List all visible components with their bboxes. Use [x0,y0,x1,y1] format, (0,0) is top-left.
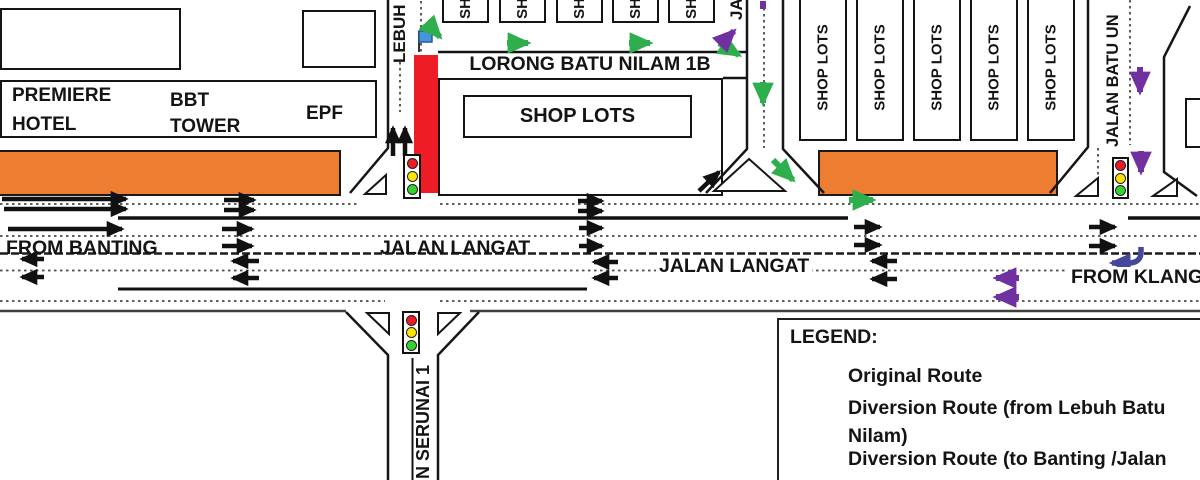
jalan-batu-unjur-label: JALAN BATU UN [1105,14,1122,147]
from-klang-label: FROM KLANG [1068,267,1200,287]
jalan-langat-label-east: JALAN LANGAT [656,256,812,276]
ja-road-label: JA [728,0,746,20]
traffic-light-icon [402,311,420,354]
jalan-serunai-label: N SERUNAI 1 [414,365,433,479]
legend-title: LEGEND: [790,327,878,347]
lebuh-road-label: LEBUH [391,4,409,63]
road-markings [0,0,1200,301]
jalan-langat-label-west: JALAN LANGAT [380,238,530,258]
legend-box: LEGEND: Original Route Diversion Route (… [777,318,1200,480]
traffic-light-icon [1112,157,1129,199]
legend-item-diversion-green: Diversion Route (from Lebuh Batu Nilam) [848,394,1170,450]
traffic-light-icon [403,154,421,199]
road-lines [0,52,1200,311]
legend-item-original-route: Original Route [848,366,982,386]
lorong-batu-nilam-label: LORONG BATU NILAM 1B [440,54,740,74]
legend-item-diversion-purple: Diversion Route (to Banting /Jalan [848,449,1167,469]
from-banting-label: FROM BANTING [6,238,158,258]
traffic-diversion-map: PREMIERE HOTEL BBT TOWER EPF SH SH SH SH… [0,0,1200,480]
uturn-arrow [1112,247,1141,263]
flag-marker-icon [419,31,432,52]
